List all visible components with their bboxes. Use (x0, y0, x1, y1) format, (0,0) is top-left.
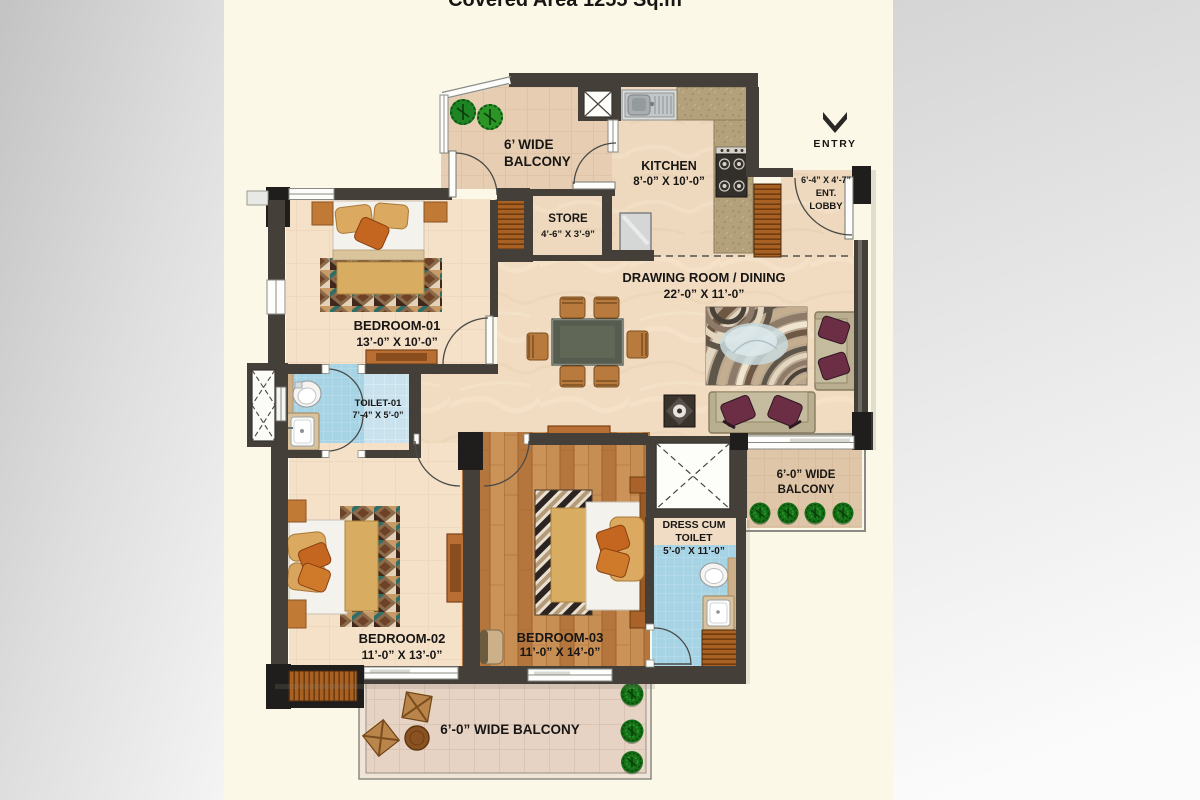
svg-text:11’-0” X 13’-0”: 11’-0” X 13’-0” (362, 648, 443, 662)
svg-text:13’-0” X 10’-0”: 13’-0” X 10’-0” (356, 335, 437, 349)
svg-text:6’-0” WIDE: 6’-0” WIDE (777, 469, 836, 481)
svg-text:6’-0” WIDE BALCONY: 6’-0” WIDE BALCONY (440, 722, 580, 737)
svg-text:BALCONY: BALCONY (778, 484, 835, 496)
svg-text:DRESS CUM: DRESS CUM (662, 519, 725, 531)
svg-text:KITCHEN: KITCHEN (641, 159, 697, 173)
svg-text:LOBBY: LOBBY (809, 201, 843, 212)
svg-text:6’-4” X 4’-7”: 6’-4” X 4’-7” (801, 175, 851, 185)
svg-text:11’-0” X 14’-0”: 11’-0” X 14’-0” (520, 645, 601, 659)
svg-text:ENTRY: ENTRY (813, 138, 856, 150)
svg-text:DRAWING ROOM / DINING: DRAWING ROOM / DINING (622, 270, 785, 285)
svg-text:6’ WIDE: 6’ WIDE (504, 137, 554, 152)
svg-text:ENT.: ENT. (816, 188, 837, 199)
svg-text:4’-6” X 3’-9”: 4’-6” X 3’-9” (541, 229, 595, 240)
svg-text:Covered Area 1255 Sq.m: Covered Area 1255 Sq.m (448, 0, 682, 11)
svg-text:8’-0” X 10’-0”: 8’-0” X 10’-0” (633, 176, 705, 188)
svg-text:STORE: STORE (548, 213, 588, 225)
svg-text:22’-0” X 11’-0”: 22’-0” X 11’-0” (664, 287, 745, 301)
svg-text:5’-0” X 11’-0”: 5’-0” X 11’-0” (663, 546, 725, 557)
svg-text:BEDROOM-02: BEDROOM-02 (359, 631, 446, 646)
svg-text:BEDROOM-01: BEDROOM-01 (354, 318, 441, 333)
svg-text:BEDROOM-03: BEDROOM-03 (517, 630, 604, 645)
svg-text:7’-4” X 5’-0”: 7’-4” X 5’-0” (352, 410, 403, 420)
svg-text:TOILET: TOILET (675, 532, 713, 544)
svg-text:TOILET-01: TOILET-01 (355, 398, 403, 409)
svg-text:BALCONY: BALCONY (504, 154, 571, 169)
